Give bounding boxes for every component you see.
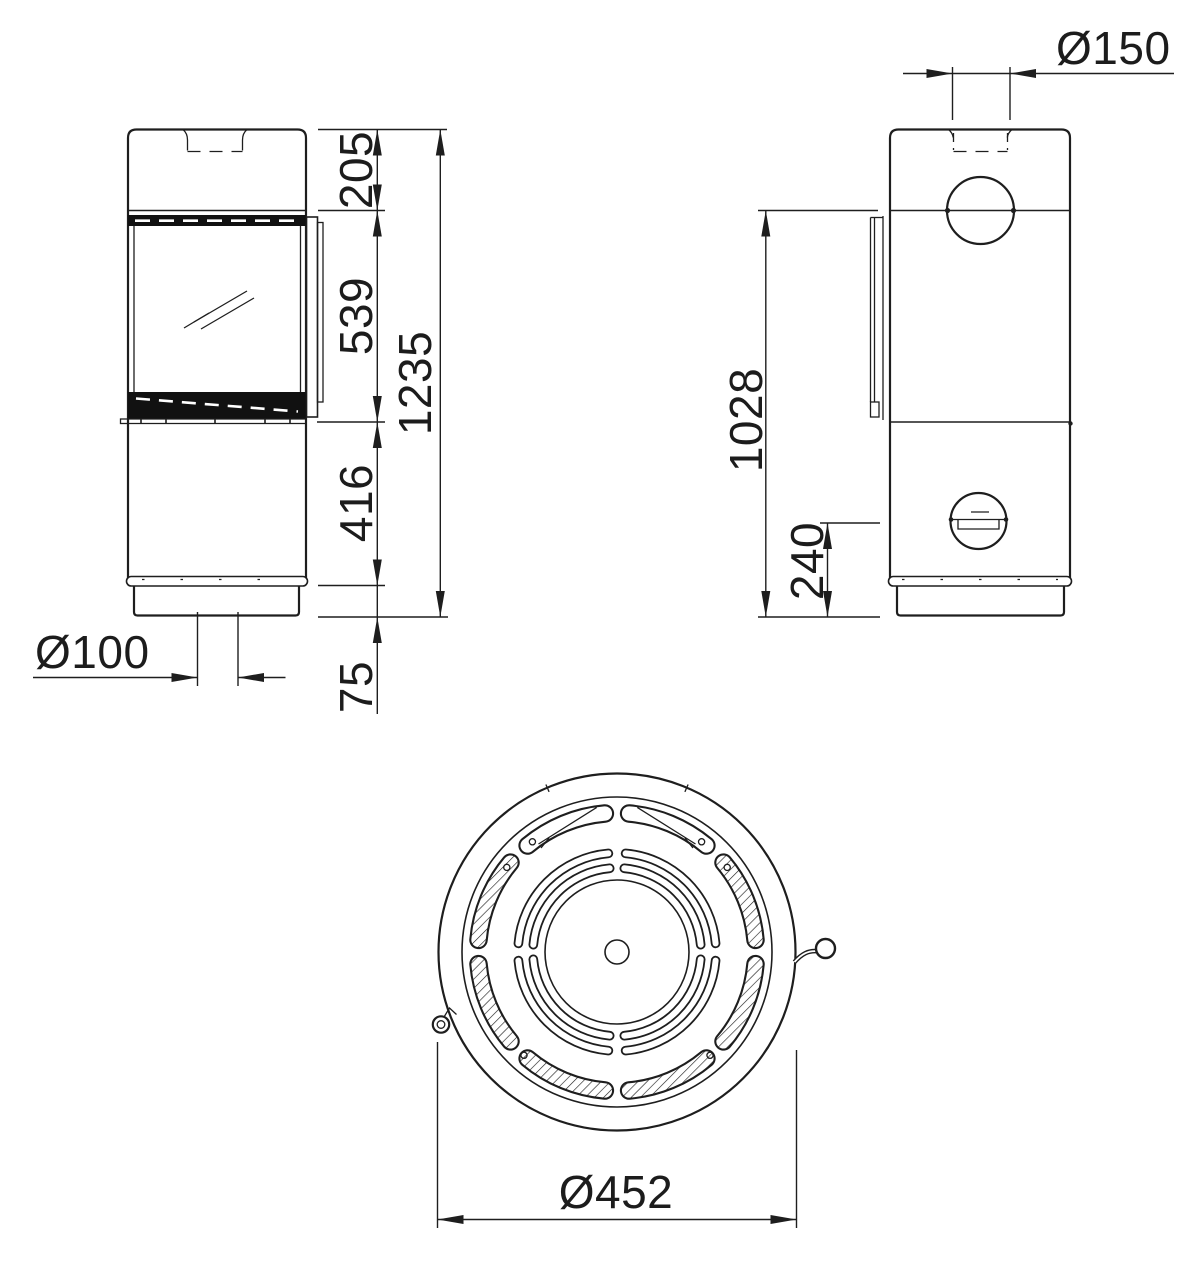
door-side-bracket — [307, 217, 324, 417]
side-base-lip — [889, 577, 1072, 587]
dim-lower-body-label: 416 — [330, 464, 382, 542]
side-view — [871, 130, 1073, 616]
side-flue-collar — [949, 130, 1013, 152]
grill-slots — [518, 853, 715, 1050]
dim-total-height: 1235 — [389, 130, 445, 618]
side-plinth — [897, 586, 1064, 616]
dim-body-diameter: Ø452 — [438, 1042, 797, 1228]
dim-door-height-label: 539 — [330, 277, 382, 355]
top-center-hole — [605, 940, 629, 964]
front-plinth — [134, 586, 299, 616]
door-handle — [795, 939, 836, 962]
dim-rear-inlet-height: 240 — [781, 522, 880, 617]
side-body-outline — [890, 130, 1070, 579]
dim-flue-label: Ø150 — [1056, 22, 1171, 74]
dim-flue: Ø150 — [903, 22, 1174, 120]
dim-top-section-label: 205 — [330, 131, 382, 209]
vent-slots — [479, 807, 756, 1090]
front-body-outline — [128, 130, 306, 579]
side-door-profile — [871, 216, 884, 420]
door-bottom-strip — [121, 419, 307, 424]
dim-plinth-label: 75 — [330, 661, 382, 713]
front-view — [121, 130, 324, 616]
top-outer-circle — [439, 774, 796, 1131]
top-rim-circle — [462, 797, 772, 1107]
dim-floor-inlet: Ø100 — [33, 612, 286, 686]
dim-rear-inlet-height-label: 240 — [781, 522, 833, 600]
dim-body-diameter-label: Ø452 — [559, 1166, 674, 1218]
dim-total-height-label: 1235 — [389, 331, 441, 435]
stove-dimension-drawing: 205 539 416 75 1235 Ø100 — [0, 0, 1200, 1271]
rear-air-inlet — [949, 493, 1009, 549]
dim-floor-inlet-label: Ø100 — [35, 626, 150, 678]
front-base-lip — [127, 577, 308, 587]
front-flue-collar — [183, 130, 247, 152]
top-plate-circle — [545, 880, 689, 1024]
top-view — [433, 774, 835, 1131]
technical-drawing-page: 205 539 416 75 1235 Ø100 — [0, 0, 1200, 1271]
glass-reflection — [184, 291, 254, 329]
dim-rear-flue-height-label: 1028 — [720, 368, 772, 472]
